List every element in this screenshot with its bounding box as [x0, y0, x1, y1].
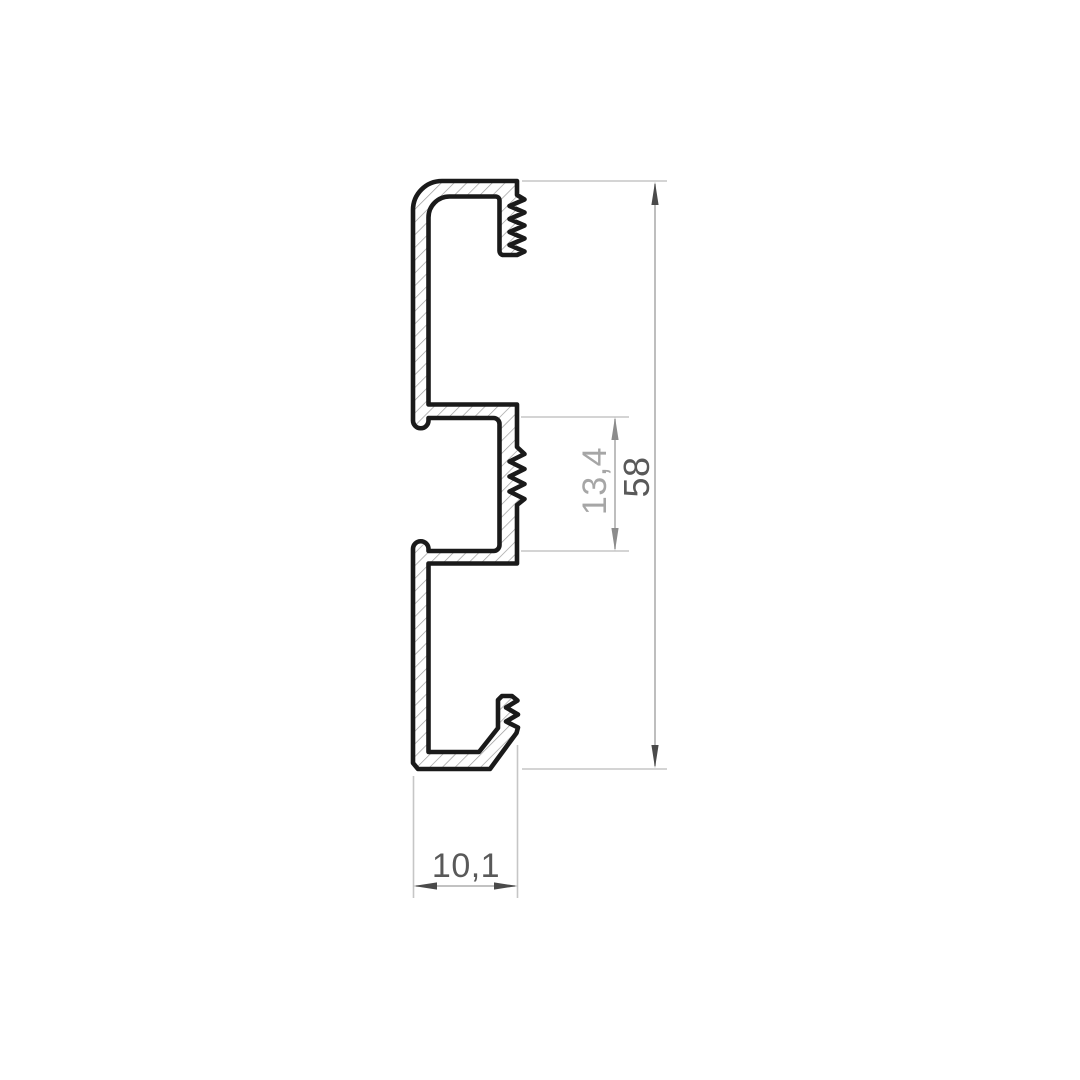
arrowhead-down-icon: [611, 528, 618, 551]
drawing-canvas: 58 13,4 10,1: [0, 0, 1080, 1080]
arrowhead-up-icon: [611, 417, 618, 440]
technical-drawing: 58 13,4 10,1: [0, 0, 1080, 1080]
dimension-slot-height: 13,4: [521, 417, 629, 551]
profile-outline: [413, 181, 525, 769]
dimension-value-overall-height: 58: [616, 456, 657, 497]
dimension-value-slot-height: 13,4: [576, 447, 614, 515]
dimension-value-overall-depth: 10,1: [432, 847, 500, 885]
arrowhead-up-icon: [651, 182, 658, 205]
arrowhead-down-icon: [651, 745, 658, 768]
